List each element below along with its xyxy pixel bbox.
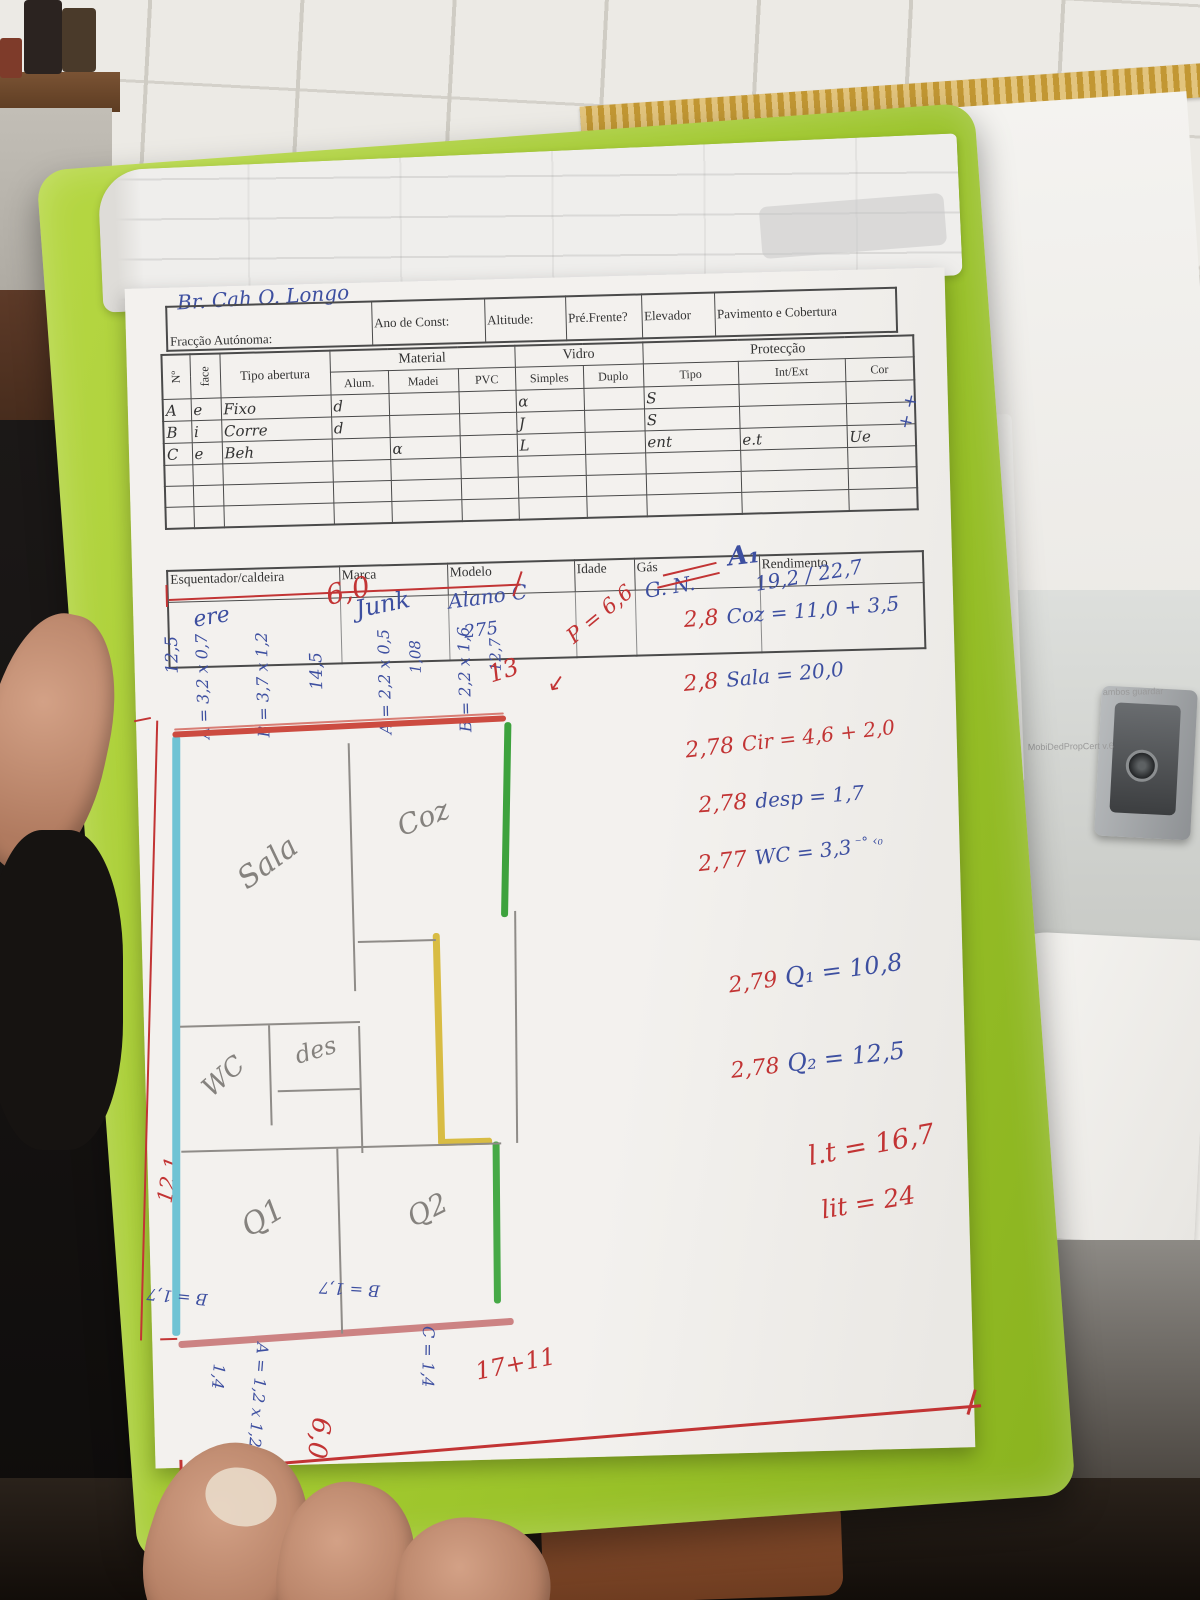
col-simples: Simples — [515, 365, 584, 390]
col-alum: Alum. — [330, 371, 389, 396]
calc-line: 2,78Q₂ = 12,5 — [729, 1036, 906, 1084]
col-pvc: PVC — [458, 367, 516, 391]
col-madei: Madei — [388, 369, 459, 394]
dim-label: A = 3,2 x 0,7 — [192, 634, 214, 740]
plan-wall-coz-step — [358, 939, 436, 943]
room-label-sala: Sala — [231, 829, 305, 896]
plan-wall-right-green — [501, 722, 511, 917]
dim-label-b2: B = 1,7 — [319, 1278, 381, 1301]
calc-line: 2,8Sala = 20,0 — [682, 657, 845, 697]
plan-wall-des-bottom — [278, 1088, 360, 1092]
dim-label-c: C = 1,4 — [418, 1326, 438, 1387]
dim-label: 1,08 — [406, 640, 425, 674]
plan-wall-wc-des — [268, 1025, 273, 1125]
room-label-des: des — [292, 1031, 340, 1070]
plan-wall-green-lower — [493, 1141, 501, 1303]
arrow-down-left-icon: ↙ — [545, 668, 568, 697]
plan-wall-q1-q2 — [336, 1149, 343, 1334]
plan-wall-corridor — [358, 1026, 363, 1153]
room-label-wc: WC — [196, 1050, 251, 1103]
label-pavimento: Pavimento e Cobertura — [714, 288, 897, 337]
dim-tick — [160, 1338, 177, 1340]
calc-line: 2,78desp = 1,7 — [698, 780, 865, 818]
col-int-ext: Int/Ext — [738, 359, 846, 385]
dim-label: 14,5 — [306, 652, 327, 690]
calc-line: 2,77WC = 3,3⁻° ‹₀ — [697, 831, 885, 877]
wooden-shelf — [0, 72, 120, 112]
openings-table: Nº face Tipo abertura Material Vidro Pro… — [160, 334, 918, 530]
col-cor: Cor — [845, 357, 915, 382]
smudge — [759, 193, 948, 259]
plan-wall-bottom — [178, 1318, 514, 1348]
kitchen-photo-scene: ambos guardar MobiDedPropCert v.6 Br. Ca… — [0, 0, 1200, 1600]
dim-six-label: 6,0 — [301, 1415, 337, 1460]
plan-wall-main-horiz — [181, 1142, 501, 1152]
plan-wall-sala-coz — [348, 743, 356, 991]
col-no: Nº — [161, 354, 190, 399]
dim-tick — [134, 717, 151, 722]
calc-total: lit = 24 — [819, 1180, 917, 1224]
a1-heading: A₁ — [726, 539, 761, 572]
dim-label-b1: B = 1,7 — [146, 1284, 208, 1309]
room-label-q2: Q2 — [402, 1186, 453, 1234]
col-face: face — [189, 353, 220, 398]
grey-device — [1094, 686, 1198, 841]
calc-line: 2,79Q₁ = 10,8 — [727, 948, 904, 999]
label-ano: Ano de Const: — [371, 299, 485, 346]
dim-label-14: 1,4 — [208, 1363, 229, 1390]
col-tipo-abertura: Tipo abertura — [219, 351, 330, 398]
label-fraccao: Fracção Autónoma: — [166, 301, 372, 350]
room-label-q1: Q1 — [235, 1192, 291, 1245]
shelf-item — [24, 0, 62, 74]
shelf-item — [62, 8, 96, 72]
label-altitude: Altitude: — [484, 296, 566, 342]
background-print-text: ambos guardar — [1103, 686, 1164, 697]
room-label-coz: Coz — [392, 793, 453, 843]
dim-sum-label: 17+11 — [473, 1342, 558, 1386]
calc-total: l.t = 16,7 — [806, 1118, 937, 1172]
survey-form-paper: Br. Cah O. Longo Fracção Autónoma: Ano d… — [125, 267, 976, 1468]
calc-line: 2,78Cir = 4,6 + 2,0 — [684, 715, 896, 764]
col-prot-tipo: Tipo — [643, 361, 739, 386]
dim-label: 12,5 — [162, 636, 183, 674]
dim-label-a: A = 1,2 x 1,2 — [245, 1342, 272, 1448]
plan-wall-right-pencil — [514, 911, 518, 1143]
plan-wall-left — [172, 736, 180, 1336]
label-elevador: Elevador — [641, 293, 715, 339]
label-pre-frente: Pré.Frente? — [565, 294, 642, 340]
dim-label: B = 3,7 x 1,2 — [252, 632, 274, 738]
background-print-text: MobiDedPropCert v.6 — [1028, 741, 1114, 752]
dark-sleeve — [0, 830, 123, 1150]
shelf-item — [0, 38, 22, 78]
dim-label: A = 2,2 x 0,5 — [374, 629, 396, 735]
plan-wall-yellow-vert — [433, 933, 446, 1145]
col-duplo: Duplo — [583, 364, 644, 389]
